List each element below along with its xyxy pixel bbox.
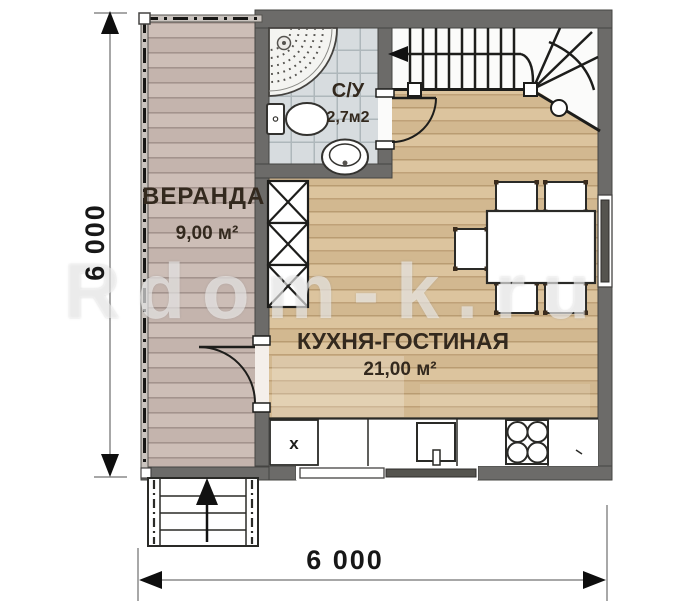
- veranda-floor: [148, 22, 255, 467]
- window-bottom: [296, 466, 478, 480]
- kitchen-living-label: КУХНЯ-ГОСТИНАЯ: [283, 330, 523, 353]
- wall-bathroom-right-upper: [378, 28, 392, 97]
- wall-top: [255, 10, 612, 28]
- kitchen-living-area: 21,00 м²: [340, 360, 460, 379]
- washbasin-icon: [322, 140, 368, 175]
- bathroom-area: 2,7м2: [312, 110, 384, 126]
- wall-bathroom-bottom: [255, 164, 392, 178]
- wall-right-upper: [598, 28, 612, 195]
- entry-steps-icon: [148, 478, 258, 546]
- veranda-label: ВЕРАНДА: [142, 185, 264, 209]
- stove-icon: [506, 420, 548, 464]
- kitchen-unit-label: x: [282, 435, 306, 452]
- kitchen-counter: [269, 419, 598, 467]
- veranda-area: 9,00 м²: [147, 224, 267, 243]
- watermark: Rdom-k.ru: [64, 246, 607, 337]
- bathroom-label: С/У: [318, 81, 378, 101]
- floor-plan: Rdom-k.ru ВЕРАНДА 9,00 м² С/У 2,7м2 КУХН…: [0, 0, 690, 610]
- kitchen-sink-icon: [417, 423, 455, 465]
- wall-left-lower: [255, 405, 269, 466]
- dimension-width-label: 6 000: [285, 547, 405, 574]
- wall-bottom-right: [478, 466, 612, 480]
- dimension-height-label: 6 000: [82, 182, 110, 302]
